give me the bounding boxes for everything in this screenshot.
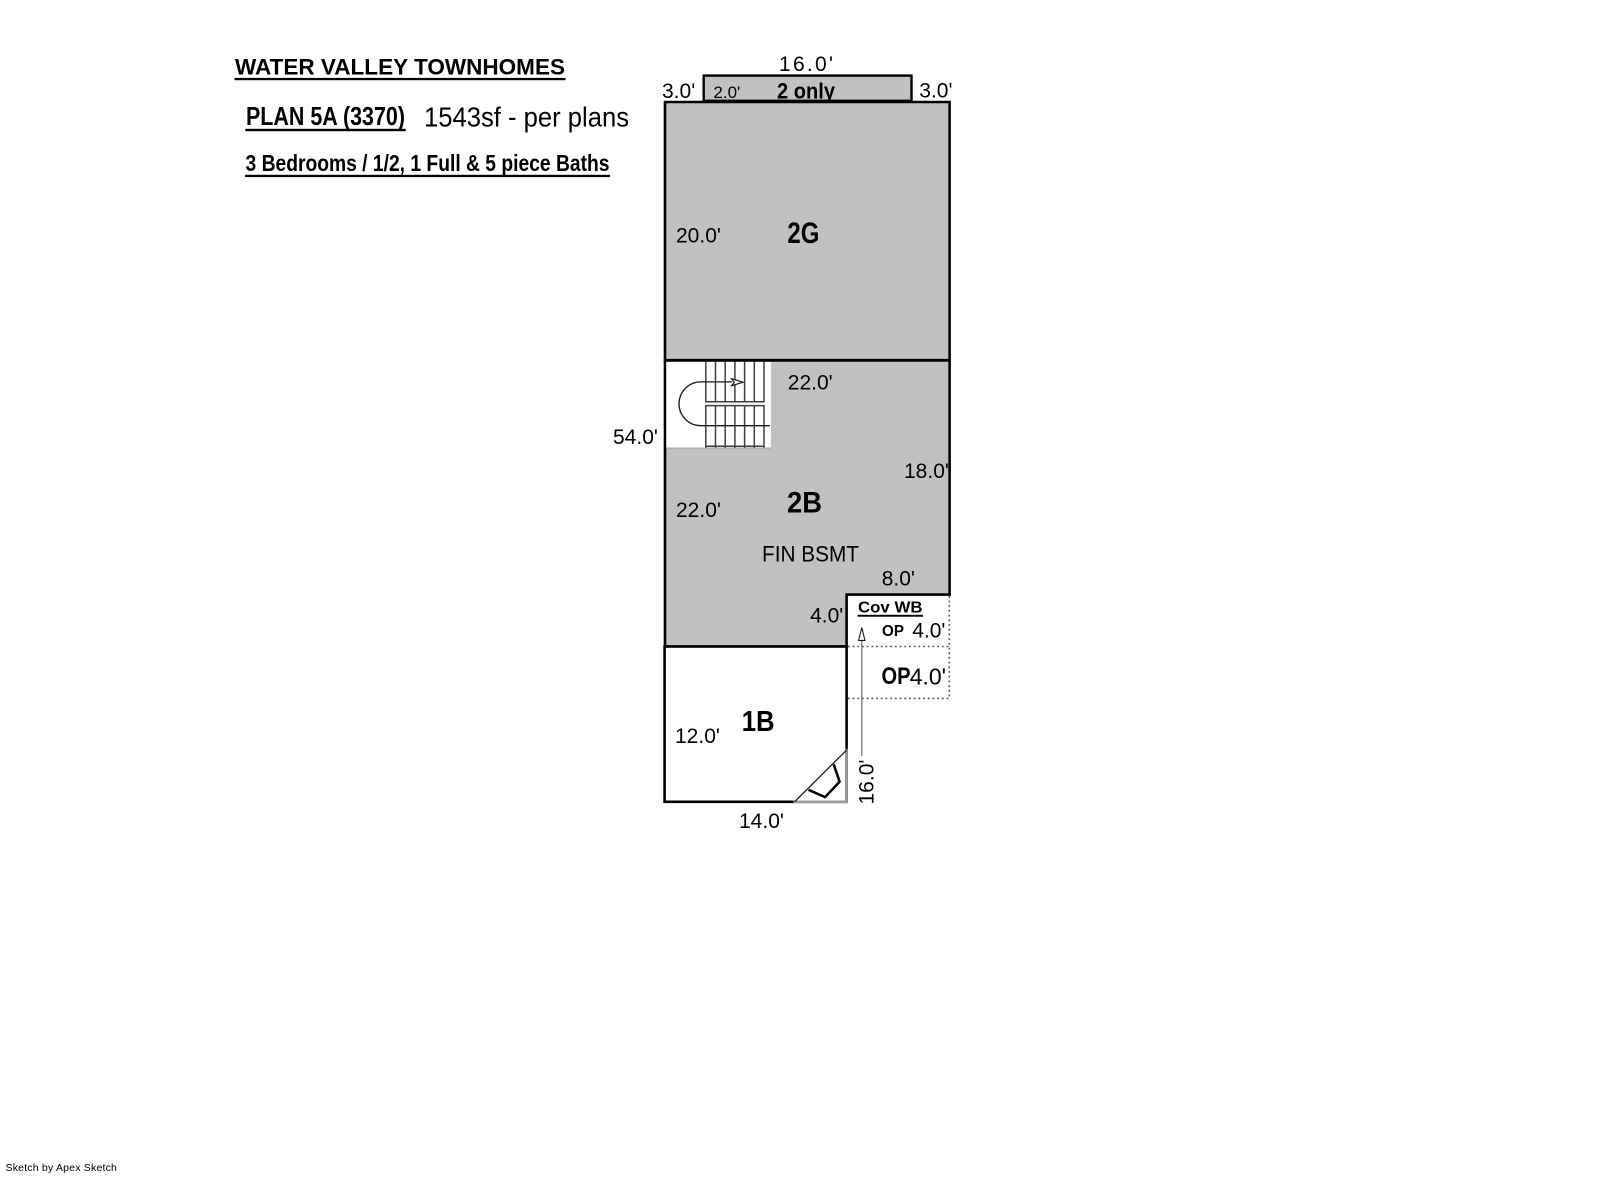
svg-text:16.0': 16.0' <box>779 53 833 76</box>
svg-text:4.0': 4.0' <box>910 664 946 690</box>
svg-text:54.0': 54.0' <box>613 426 658 449</box>
svg-text:22.0': 22.0' <box>676 499 721 522</box>
svg-text:3.0': 3.0' <box>662 80 695 103</box>
svg-text:PLAN 5A (3370): PLAN 5A (3370) <box>246 101 405 131</box>
svg-text:OP: OP <box>882 623 904 640</box>
svg-text:3.0': 3.0' <box>919 80 952 103</box>
svg-text:8.0': 8.0' <box>882 567 915 590</box>
svg-text:2G: 2G <box>787 217 819 250</box>
svg-text:14.0': 14.0' <box>739 810 784 833</box>
svg-text:Cov WB: Cov WB <box>858 600 923 617</box>
svg-text:OP: OP <box>882 664 911 690</box>
svg-text:22.0': 22.0' <box>788 371 833 394</box>
svg-text:Sketch by Apex Sketch: Sketch by Apex Sketch <box>6 1162 118 1174</box>
svg-text:1B: 1B <box>742 706 775 738</box>
svg-text:20.0': 20.0' <box>676 225 721 248</box>
svg-text:2.0': 2.0' <box>713 83 740 102</box>
svg-text:2 only: 2 only <box>777 79 836 104</box>
svg-text:2B: 2B <box>787 486 822 519</box>
svg-text:4.0': 4.0' <box>912 619 945 642</box>
svg-text:12.0': 12.0' <box>675 725 720 748</box>
svg-text:FIN BSMT: FIN BSMT <box>762 542 859 567</box>
svg-text:16.0': 16.0' <box>855 760 878 805</box>
svg-text:3 Bedrooms / 1/2, 1 Full & 5 p: 3 Bedrooms / 1/2, 1 Full & 5 piece Baths <box>246 150 610 176</box>
svg-text:18.0': 18.0' <box>904 460 949 483</box>
svg-text:1543sf - per plans: 1543sf - per plans <box>424 101 629 132</box>
svg-text:4.0': 4.0' <box>810 605 843 628</box>
svg-text:WATER VALLEY TOWNHOMES: WATER VALLEY TOWNHOMES <box>235 55 565 80</box>
